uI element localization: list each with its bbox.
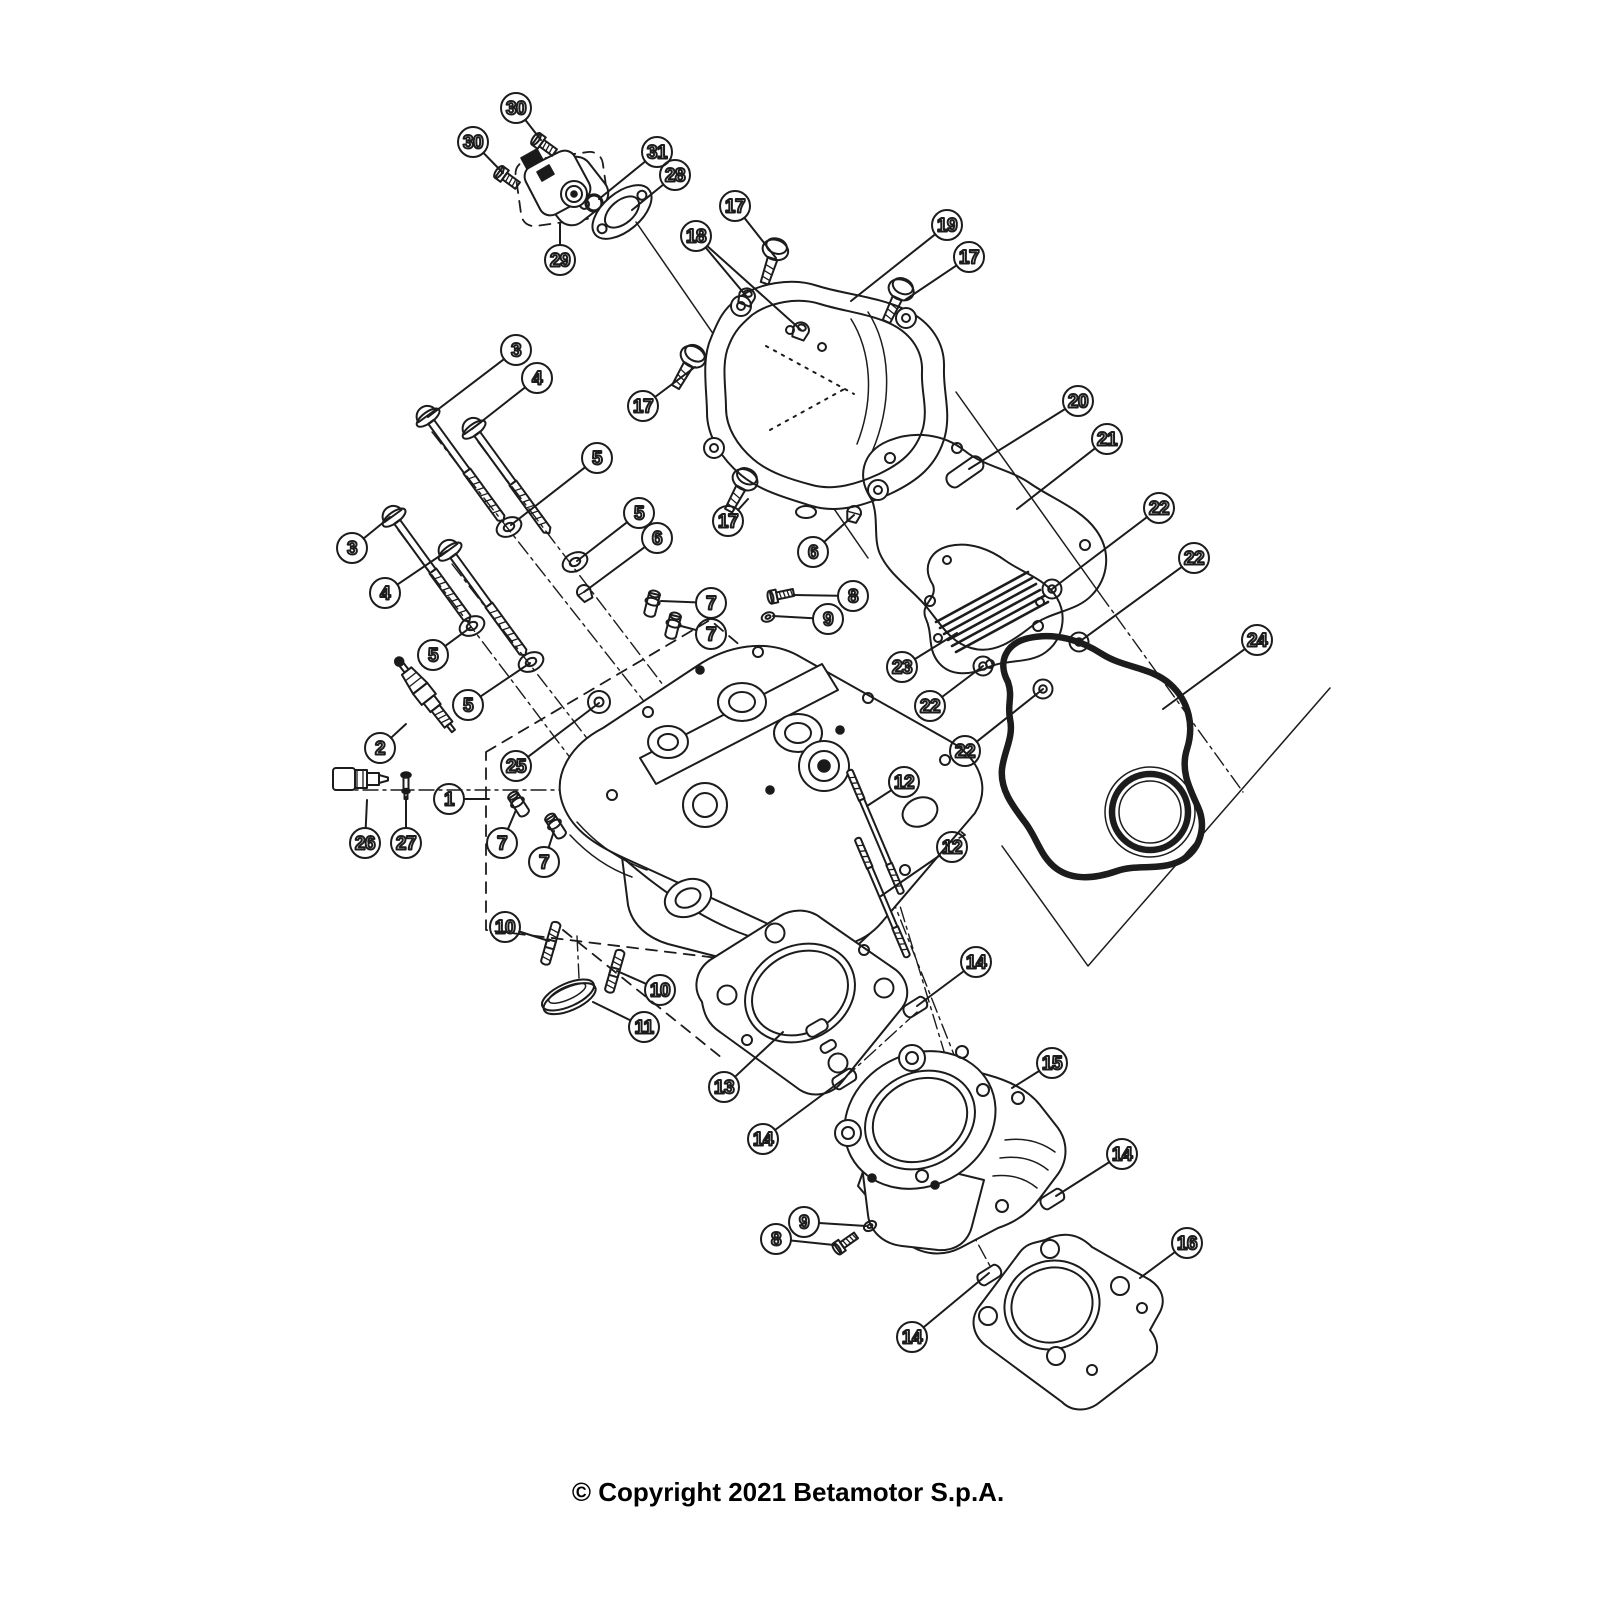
balloon-number-25: 25 (506, 757, 527, 778)
callout-5: 5 (577, 498, 654, 561)
balloon-number-9: 9 (799, 1213, 809, 1234)
callout-7: 7 (529, 831, 559, 877)
parts-diagram-canvas: 3030312829171917183417202155617622223489… (0, 0, 1600, 1600)
temp-sensor-26 (333, 768, 388, 790)
valve-guide-7a (642, 589, 662, 618)
balloon-number-23: 23 (892, 658, 912, 679)
balloon-number-11: 11 (634, 1018, 654, 1039)
balloon-number-17: 17 (725, 197, 745, 218)
leader-line-3 (428, 359, 504, 417)
leader-line-7 (661, 601, 696, 602)
balloon-number-9: 9 (823, 610, 833, 631)
balloon-number-10: 10 (495, 918, 515, 939)
screw-8-bottom (831, 1230, 860, 1256)
leader-line-14 (917, 971, 964, 1006)
callout-19: 19 (851, 210, 962, 301)
leader-line-16 (1140, 1252, 1175, 1278)
balloon-number-4: 4 (380, 584, 391, 605)
callout-8: 8 (794, 581, 868, 611)
leader-line-17 (655, 367, 695, 397)
bolt-17a (752, 235, 791, 287)
leader-line-15 (1012, 1071, 1039, 1088)
spark-plug-2 (389, 652, 460, 736)
callout-23: 23 (887, 633, 957, 682)
balloon-number-27: 27 (396, 834, 416, 855)
callout-10: 10 (617, 971, 675, 1005)
leader-line-10 (519, 932, 549, 942)
callout-15: 15 (1012, 1048, 1067, 1088)
balloon-number-21: 21 (1097, 430, 1118, 451)
washer-5b (559, 548, 590, 576)
leader-line-7 (549, 831, 554, 848)
callout-11: 11 (593, 1002, 659, 1042)
balloon-number-3: 3 (347, 539, 357, 560)
balloon-number-15: 15 (1042, 1054, 1063, 1075)
leader-line-4 (397, 551, 447, 585)
balloon-number-7: 7 (539, 853, 549, 874)
callout-21: 21 (1017, 424, 1122, 509)
bolt-3a (410, 400, 514, 529)
callout-17: 17 (720, 191, 776, 258)
balloon-number-4: 4 (532, 369, 543, 390)
balloon-number-24: 24 (1247, 631, 1268, 652)
callout-16: 16 (1140, 1228, 1202, 1278)
balloon-number-14: 14 (753, 1130, 774, 1151)
callout-6: 6 (798, 515, 854, 567)
callout-7: 7 (487, 810, 517, 858)
balloon-number-14: 14 (966, 953, 987, 974)
leader-line-5 (577, 522, 627, 561)
leader-line-24 (1163, 649, 1245, 709)
balloon-number-22: 22 (955, 742, 975, 763)
leader-line-7 (681, 626, 697, 630)
intake-seat-11 (538, 973, 600, 1020)
callout-26: 26 (350, 800, 380, 858)
leader-line-6 (824, 515, 854, 542)
leader-line-14 (1056, 1162, 1109, 1196)
balloon-number-12: 12 (942, 838, 962, 859)
check-valve-27 (401, 772, 411, 799)
balloon-number-16: 16 (1177, 1234, 1197, 1255)
leader-line-5 (480, 663, 530, 697)
callout-22: 22 (950, 689, 1043, 766)
callout-3: 3 (337, 517, 390, 563)
callout-30: 30 (458, 127, 503, 173)
leader-line-18 (706, 248, 747, 298)
bolt-4a (456, 412, 560, 541)
callout-24: 24 (1163, 625, 1272, 709)
callout-5: 5 (511, 443, 612, 525)
leader-line-30 (483, 153, 503, 173)
balloon-number-17: 17 (718, 512, 738, 533)
leader-line-19 (851, 234, 935, 301)
callout-10: 10 (490, 912, 549, 942)
callout-27: 27 (391, 797, 421, 858)
balloon-number-31: 31 (647, 143, 668, 164)
balloon-number-6: 6 (808, 543, 818, 564)
balloon-number-7: 7 (706, 625, 716, 646)
leader-line-20 (969, 409, 1065, 469)
balloon-number-12: 12 (894, 773, 914, 794)
callout-14: 14 (1056, 1139, 1137, 1196)
callout-20: 20 (969, 386, 1093, 469)
balloon-number-19: 19 (937, 216, 957, 237)
leader-line-2 (391, 724, 406, 738)
balloon-number-30: 30 (463, 133, 483, 154)
callout-2: 2 (365, 724, 406, 763)
balloon-number-10: 10 (650, 981, 670, 1002)
balloon-number-6: 6 (652, 529, 662, 550)
leader-line-11 (593, 1002, 631, 1020)
balloon-number-3: 3 (511, 341, 521, 362)
screw-8-top (766, 586, 794, 604)
leader-line-4 (472, 387, 525, 429)
leader-line-6 (584, 547, 645, 592)
balloon-number-13: 13 (714, 1078, 734, 1099)
balloon-number-22: 22 (1149, 499, 1169, 520)
balloon-number-28: 28 (665, 166, 685, 187)
balloon-number-14: 14 (902, 1328, 923, 1349)
balloon-number-18: 18 (686, 227, 706, 248)
callout-30: 30 (501, 93, 541, 140)
balloon-number-2: 2 (375, 739, 385, 760)
balloon-number-5: 5 (634, 504, 645, 525)
callout-4: 4 (472, 363, 552, 429)
callout-14: 14 (917, 947, 991, 1006)
callout-6: 6 (584, 523, 672, 592)
leader-line-23 (915, 633, 957, 659)
leader-line-22 (1052, 517, 1147, 589)
leader-line-8 (791, 1241, 834, 1246)
balloon-number-22: 22 (920, 697, 940, 718)
callout-8: 8 (761, 1224, 834, 1254)
callout-17: 17 (905, 242, 984, 300)
balloon-number-26: 26 (355, 834, 375, 855)
balloon-number-17: 17 (959, 248, 979, 269)
balloon-number-22: 22 (1184, 549, 1204, 570)
balloon-number-8: 8 (848, 587, 858, 608)
balloon-number-30: 30 (506, 99, 526, 120)
balloon-number-5: 5 (592, 449, 603, 470)
balloon-number-8: 8 (771, 1230, 781, 1251)
balloon-number-7: 7 (497, 834, 507, 855)
balloon-number-20: 20 (1068, 392, 1088, 413)
callout-3: 3 (428, 335, 531, 417)
leader-line-5 (511, 467, 585, 525)
valve-guide-7d (542, 811, 568, 841)
leader-line-22 (1079, 567, 1182, 642)
callout-5: 5 (418, 627, 471, 670)
callout-17: 17 (713, 499, 748, 536)
callout-14: 14 (748, 1078, 845, 1154)
callout-9: 9 (773, 604, 843, 634)
leader-line-8 (794, 595, 838, 596)
callout-5: 5 (453, 663, 530, 720)
callout-1: 1 (434, 784, 489, 814)
balloon-number-5: 5 (463, 696, 474, 717)
exploded-engine-diagram: 3030312829171917183417202155617622223489… (0, 0, 1600, 1600)
balloon-number-14: 14 (1112, 1145, 1133, 1166)
callout-17: 17 (628, 367, 695, 421)
leader-line-17 (905, 265, 957, 300)
leader-line-26 (366, 800, 367, 828)
balloon-number-1: 1 (444, 790, 455, 811)
copyright-text: © Copyright 2021 Betamotor S.p.A. (0, 1477, 1576, 1508)
balloon-number-17: 17 (633, 397, 653, 418)
callout-29: 29 (545, 224, 575, 275)
callout-22: 22 (915, 666, 983, 721)
balloon-number-29: 29 (550, 251, 570, 272)
leader-line-7 (508, 810, 516, 829)
valve-guide-7c (505, 789, 531, 819)
leader-line-9 (773, 616, 813, 618)
leader-line-9 (819, 1223, 866, 1226)
balloon-number-5: 5 (428, 646, 439, 667)
balloon-number-7: 7 (706, 594, 716, 615)
stud-10a (540, 921, 561, 966)
